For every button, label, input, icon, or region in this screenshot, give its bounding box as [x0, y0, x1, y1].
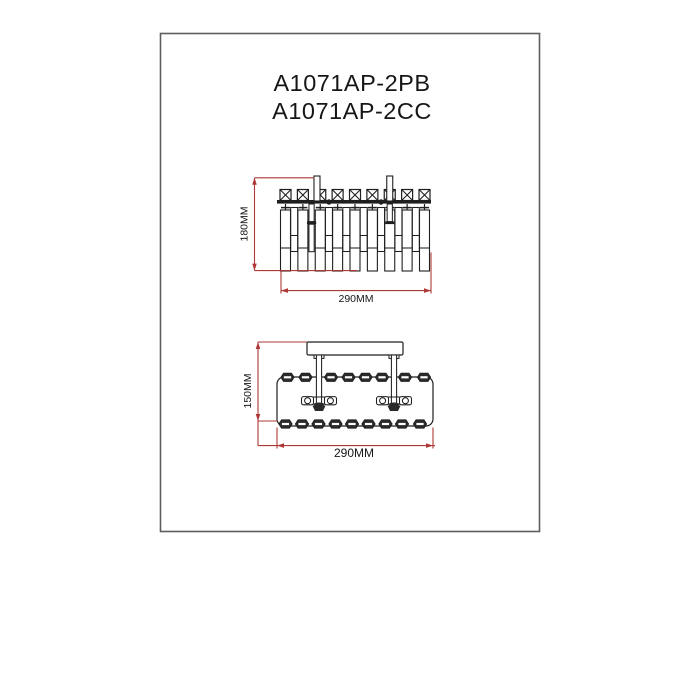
socket-screw-hole: [327, 398, 333, 404]
front-view-height-dimension-label: 180MM: [239, 206, 251, 241]
candle-arm: [309, 204, 314, 222]
wall-stem: [314, 176, 320, 201]
top-view: [277, 342, 433, 428]
crystal-bead-slit: [365, 423, 372, 425]
socket-screw-hole: [402, 398, 408, 404]
model-number-line1: A1071AP-2PB: [273, 70, 430, 96]
front-crystal: [367, 210, 377, 271]
front-crystal: [298, 210, 308, 271]
candle-arm: [387, 204, 392, 222]
crystal-bead-slit: [416, 423, 423, 425]
front-crystal: [315, 210, 325, 271]
crystal-bead-slit: [298, 423, 305, 425]
back-crystal: [378, 208, 385, 252]
back-crystal: [412, 208, 419, 252]
dimension-arrow: [281, 288, 288, 293]
top-view-height-dimension-label: 150MM: [242, 373, 254, 408]
top-view-width-dimension-label: 290MM: [334, 446, 374, 460]
crystal-bead-slit: [401, 376, 408, 378]
crystal-bead-slit: [420, 376, 427, 378]
bar-knob: [326, 199, 331, 204]
crystal-bead-slit: [302, 376, 309, 378]
back-crystal: [343, 208, 350, 252]
socket-screw-hole: [305, 398, 311, 404]
front-crystal: [420, 210, 430, 271]
crystal-bead-slit: [345, 376, 352, 378]
candle-socket-cap: [385, 221, 394, 224]
dimension-arrow: [277, 443, 284, 448]
back-crystal: [309, 224, 314, 252]
front-crystal: [281, 210, 291, 271]
crystal-bead-slit: [398, 423, 405, 425]
model-number-line2: A1071AP-2CC: [272, 98, 432, 124]
dimension-arrow: [426, 443, 433, 448]
back-crystal: [291, 208, 298, 252]
candle-socket-cap: [307, 221, 316, 224]
technical-drawing-canvas: A1071AP-2PB A1071AP-2CC 180MM 290MM 150M…: [0, 0, 700, 700]
back-crystal: [325, 208, 332, 252]
dimension-arrow: [256, 414, 261, 421]
crystal-bead-slit: [362, 376, 369, 378]
mounting-plate: [307, 342, 403, 355]
front-crystal: [350, 210, 360, 271]
crystal-bead-slit: [315, 423, 322, 425]
socket-screw-hole: [380, 398, 386, 404]
crystal-bead-slit: [382, 423, 389, 425]
crystal-bead-slit: [282, 423, 289, 425]
back-crystal: [395, 208, 402, 252]
wall-stem: [387, 176, 393, 201]
front-view-width-dimension-label: 290MM: [338, 293, 373, 305]
crystal-bead-slit: [327, 376, 334, 378]
bar-knob: [378, 199, 383, 204]
crystal-bead-slit: [332, 423, 339, 425]
dimension-arrow: [252, 264, 257, 271]
crystal-bead-slit: [378, 376, 385, 378]
dimension-arrow: [252, 178, 257, 185]
dimension-arrow: [256, 342, 261, 349]
crystal-bead-slit: [284, 376, 291, 378]
crystal-bead-slit: [348, 423, 355, 425]
dimension-arrow: [424, 288, 431, 293]
back-crystal: [360, 208, 367, 252]
front-crystal: [333, 210, 343, 271]
screenshot-root: A1071AP-2PB A1071AP-2CC 180MM 290MM 150M…: [0, 0, 700, 700]
front-crystal: [402, 210, 412, 271]
front-view: [277, 176, 431, 271]
